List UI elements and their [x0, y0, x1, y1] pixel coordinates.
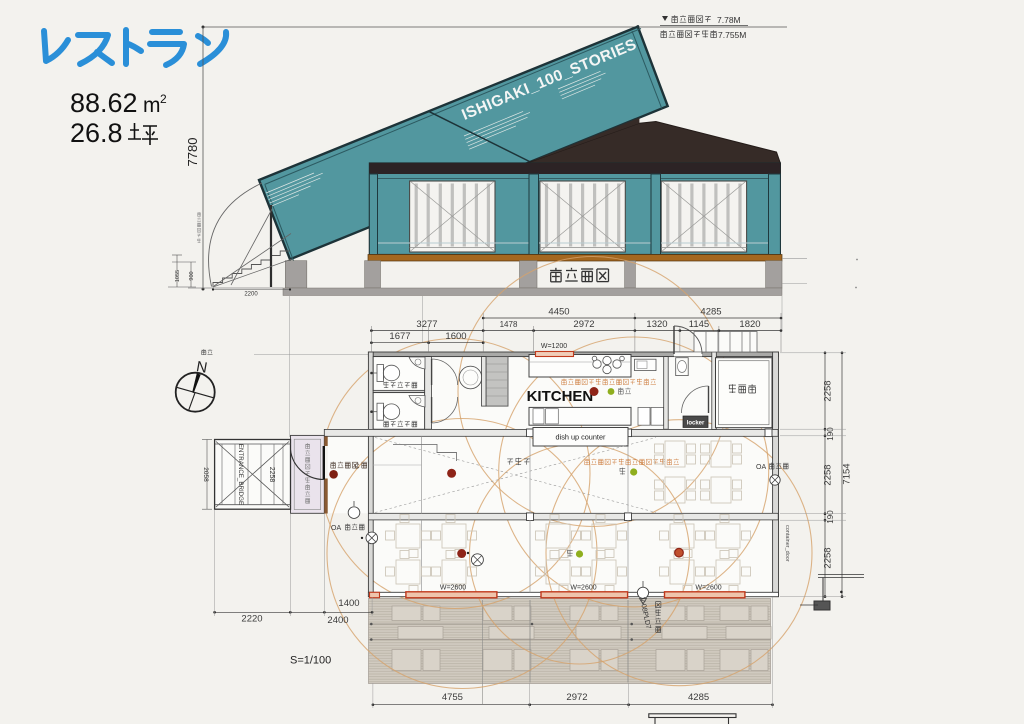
svg-text:W=2600: W=2600 [440, 585, 466, 592]
svg-text:W=1200: W=1200 [541, 343, 567, 350]
svg-text:W=2600: W=2600 [570, 585, 596, 592]
svg-text:900: 900 [189, 271, 195, 280]
svg-text:1055: 1055 [175, 270, 181, 282]
svg-text:1820: 1820 [739, 319, 760, 330]
svg-text:ENTRANCE_BRIDGE: ENTRANCE_BRIDGE [237, 444, 244, 505]
svg-text:1400: 1400 [338, 598, 359, 609]
svg-text:190: 190 [826, 510, 835, 524]
svg-text:4285: 4285 [700, 307, 721, 318]
svg-text:2220: 2220 [241, 614, 262, 625]
svg-text:2258: 2258 [823, 547, 834, 568]
svg-text:2058: 2058 [202, 467, 209, 482]
svg-text:190: 190 [826, 427, 835, 441]
svg-text:C: C [354, 464, 359, 471]
svg-text:7.78M: 7.78M [717, 15, 741, 25]
svg-text:1600: 1600 [445, 331, 466, 342]
svg-text:2258: 2258 [268, 467, 275, 483]
svg-text:2258: 2258 [823, 380, 834, 401]
svg-text:dish up counter: dish up counter [556, 433, 606, 442]
svg-text:7154: 7154 [842, 463, 853, 484]
svg-text:4755: 4755 [442, 692, 463, 703]
svg-text:1677: 1677 [389, 331, 410, 342]
svg-text:2972: 2972 [573, 319, 594, 330]
svg-text:locker: locker [687, 421, 705, 427]
svg-text:1478: 1478 [500, 320, 518, 329]
svg-text:2972: 2972 [566, 692, 587, 703]
svg-text:2400: 2400 [327, 615, 348, 626]
svg-text:m: m [143, 94, 161, 117]
svg-text:1145: 1145 [689, 319, 709, 330]
svg-text:7780: 7780 [185, 138, 200, 167]
svg-text:1320: 1320 [646, 319, 667, 330]
svg-text:W=2600: W=2600 [695, 585, 721, 592]
svg-text:3277: 3277 [416, 319, 437, 330]
svg-text:4450: 4450 [548, 307, 569, 318]
svg-text:2258: 2258 [823, 464, 834, 485]
svg-text:container_door: container_door [784, 525, 790, 562]
svg-text:2200: 2200 [244, 292, 258, 298]
svg-text:OA: OA [756, 464, 766, 471]
svg-text:88.62: 88.62 [70, 88, 138, 118]
svg-text:OA: OA [331, 525, 341, 532]
svg-text:KITCHEN: KITCHEN [527, 388, 594, 405]
svg-text:S=1/100: S=1/100 [290, 655, 331, 667]
svg-text:7.755M: 7.755M [718, 30, 746, 40]
svg-text:2: 2 [160, 92, 167, 106]
svg-text:4285: 4285 [688, 692, 709, 703]
svg-text:26.8: 26.8 [70, 118, 123, 148]
